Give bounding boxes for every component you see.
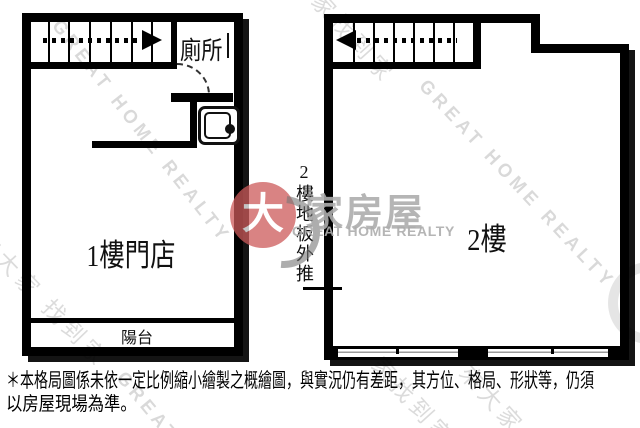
floorplan-image: 廁所 1樓門店 陽台 2樓 2樓地板外推 xyxy=(0,0,640,428)
stair-direction-arrow-icon xyxy=(142,30,162,50)
toilet-fixture-knob xyxy=(225,124,235,134)
floor2-upper-right-wall xyxy=(531,44,629,53)
disclaimer-line2: 以房屋現場為準。 xyxy=(6,389,137,416)
window xyxy=(488,349,608,357)
toilet-door-swing-arc xyxy=(177,63,210,95)
floor2-stair-right-wall xyxy=(473,23,481,62)
toilet-fixture-icon xyxy=(198,106,240,145)
window-divider xyxy=(551,349,554,354)
toilet-label: 廁所 xyxy=(180,31,223,67)
toilet-left-wall xyxy=(171,22,177,63)
diagonal-watermark-text: GREAT HOME REALTY xyxy=(414,76,619,294)
brand-name-en-watermark: GREAT HOME REALTY xyxy=(292,223,455,239)
window-divider xyxy=(396,349,399,354)
floor1-room-label: 1樓門店 xyxy=(74,230,189,275)
annotation-tick-line xyxy=(303,287,342,290)
toilet-door-leaf-line xyxy=(227,33,229,58)
window xyxy=(338,349,458,357)
